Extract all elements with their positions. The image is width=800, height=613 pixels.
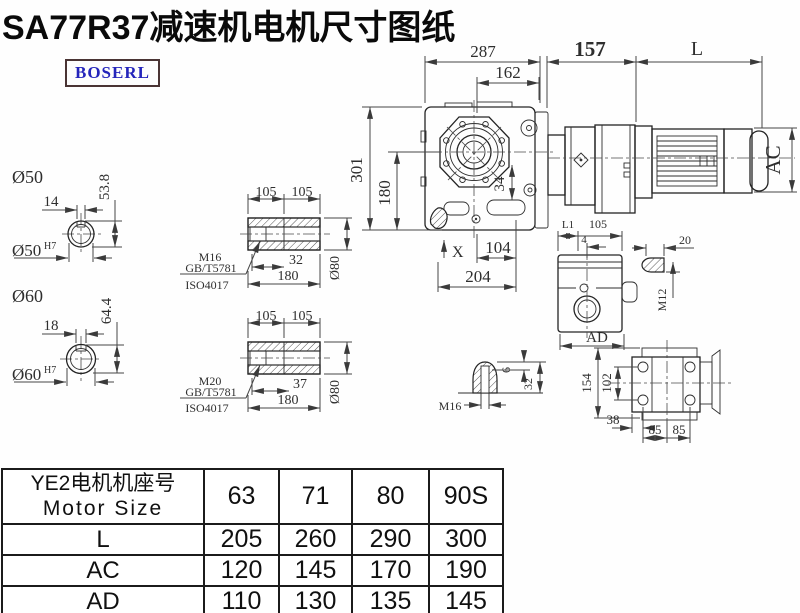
cone-m16: M16 [439, 399, 462, 413]
sleeve2-len: 180 [278, 393, 299, 408]
cell-AC-63: 120 [204, 555, 279, 586]
sleeve2-dia: Ø80 [328, 380, 343, 404]
sleeve2-std1: GB/T5781 [185, 385, 236, 399]
dim-157: 157 [574, 37, 606, 61]
brand-logo: BOSERL [65, 59, 160, 87]
table-row-AD: AD 110 130 135 145 [2, 586, 503, 613]
side-l1: L1 [562, 219, 574, 231]
side-4: 4 [581, 234, 587, 246]
row-label-AC: AC [2, 555, 204, 586]
header-col-71: 71 [279, 469, 352, 524]
sleeve1-std1: GB/T5781 [185, 261, 236, 275]
table-header-row: YE2电机机座号 Motor Size 63 71 80 90S [2, 469, 503, 524]
cell-AC-90s: 190 [429, 555, 503, 586]
sleeve-m16: 105 105 M16 GB/T5781 ISO4017 32 180 Ø80 [180, 185, 352, 292]
dim-104: 104 [485, 238, 511, 257]
cell-L-63: 205 [204, 524, 279, 555]
shaft60-key-width: 18 [44, 318, 59, 334]
main-dimensions: 287 162 157 L 301 180 34 AC X [347, 37, 797, 292]
sleeve2-depth: 37 [293, 377, 307, 392]
top-85b: 85 [673, 422, 686, 437]
cell-AD-63: 110 [204, 586, 279, 613]
sleeve1-105a: 105 [256, 185, 277, 200]
dim-162: 162 [495, 63, 521, 82]
dimension-table: YE2电机机座号 Motor Size 63 71 80 90S L 205 2… [1, 468, 504, 613]
header-cn: YE2电机机座号 [3, 472, 203, 496]
row-label-L: L [2, 524, 204, 555]
top-38: 38 [607, 412, 620, 427]
gearbox-top-view: 154 102 38 85 85 [579, 340, 733, 443]
sleeve1-105b: 105 [292, 185, 313, 200]
dim-180v: 180 [375, 180, 394, 206]
dim-301: 301 [347, 157, 366, 183]
sleeve1-depth: 32 [289, 253, 303, 268]
page-title: SA77R37减速机电机尺寸图纸 [2, 0, 455, 49]
dim-L: L [691, 38, 703, 60]
shaft60-bore: Ø60 [12, 365, 41, 384]
header-col-80: 80 [352, 469, 429, 524]
cell-AC-71: 145 [279, 555, 352, 586]
shaft50-depth: 53.8 [97, 174, 113, 200]
cone-6: 6 [499, 367, 513, 373]
shaft60-depth: 64.4 [99, 297, 115, 324]
header-col-90s: 90S [429, 469, 503, 524]
header-en: Motor Size [3, 497, 203, 521]
header-col-63: 63 [204, 469, 279, 524]
cell-L-80: 290 [352, 524, 429, 555]
table-row-L: L 205 260 290 300 [2, 524, 503, 555]
plug-m12: 20 M12 [632, 233, 694, 311]
gearbox-side-view: L1 105 4 AD [558, 217, 637, 350]
cell-L-90s: 300 [429, 524, 503, 555]
shaft60-bore-sup: H7 [44, 365, 56, 376]
shaft60-label: Ø60 [12, 286, 43, 306]
shaft50-label: Ø50 [12, 167, 43, 187]
motor [548, 126, 795, 198]
sleeve1-std2: ISO4017 [185, 278, 228, 292]
sleeve2-105a: 105 [256, 309, 277, 324]
dim-X: X [452, 244, 464, 261]
plug-m12-label: M12 [655, 289, 669, 312]
sleeve1-len: 180 [278, 269, 299, 284]
table-row-AC: AC 120 145 170 190 [2, 555, 503, 586]
gearbox-front-view [421, 100, 556, 240]
dim-34: 34 [492, 176, 508, 192]
top-154: 154 [579, 373, 594, 393]
side-ad: AD [586, 330, 608, 346]
side-105: 105 [589, 217, 607, 231]
sleeve-m20: 105 105 M20 GB/T5781 ISO4017 37 180 Ø80 [180, 309, 352, 415]
cell-L-71: 260 [279, 524, 352, 555]
shaft50-key-width: 14 [44, 194, 60, 210]
top-102: 102 [599, 373, 614, 393]
shaft50-bore: Ø50 [12, 241, 41, 260]
cell-AD-80: 135 [352, 586, 429, 613]
cone-32: 32 [521, 378, 535, 390]
dim-204: 204 [465, 267, 491, 286]
plug-20: 20 [679, 233, 691, 247]
sleeve2-std2: ISO4017 [185, 401, 228, 415]
header-motor-size: YE2电机机座号 Motor Size [2, 469, 204, 524]
sleeve1-dia: Ø80 [328, 256, 343, 280]
cell-AC-80: 170 [352, 555, 429, 586]
motor-adapter [548, 125, 635, 213]
shaft-section-60: Ø60 18 64.4 Ø60 H7 [12, 286, 124, 386]
shaft-section-50: Ø50 14 53.8 Ø50 H7 [12, 167, 122, 262]
dim-AC: AC [761, 145, 785, 174]
dim-287: 287 [470, 42, 496, 61]
row-label-AD: AD [2, 586, 204, 613]
cell-AD-90s: 145 [429, 586, 503, 613]
cell-AD-71: 130 [279, 586, 352, 613]
top-85a: 85 [649, 422, 662, 437]
shaft50-bore-sup: H7 [44, 241, 56, 252]
cone-detail: 6 32 M16 [439, 353, 546, 413]
drawing-sheet: 287 162 157 L 301 180 34 AC X [0, 0, 800, 613]
sleeve2-105b: 105 [292, 309, 313, 324]
